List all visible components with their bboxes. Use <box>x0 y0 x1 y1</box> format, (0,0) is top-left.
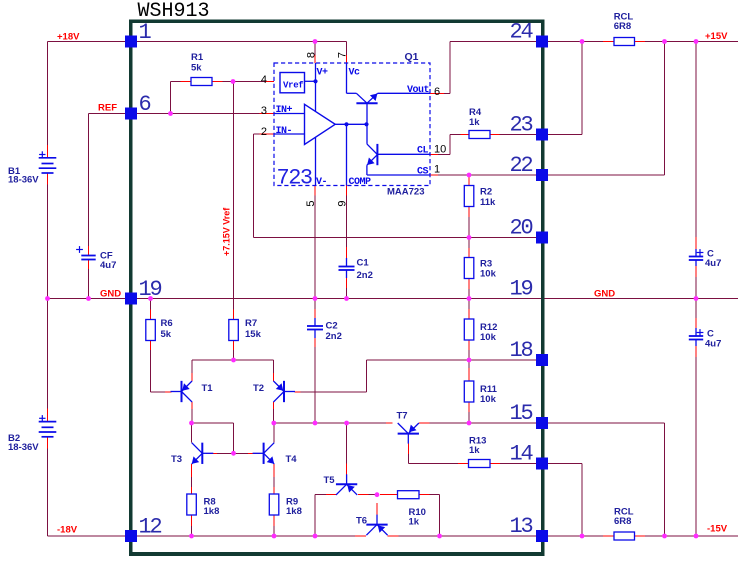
svg-text:22: 22 <box>509 153 532 178</box>
svg-text:Vc: Vc <box>349 68 361 79</box>
svg-text:2: 2 <box>261 126 267 138</box>
svg-text:Q1: Q1 <box>405 51 419 63</box>
svg-text:10k: 10k <box>480 269 497 280</box>
svg-text:4u7: 4u7 <box>705 258 721 269</box>
svg-text:6R8: 6R8 <box>614 516 631 527</box>
svg-text:11k: 11k <box>480 197 496 208</box>
svg-text:V+: V+ <box>317 68 329 79</box>
svg-text:9: 9 <box>336 200 348 206</box>
svg-text:15k: 15k <box>245 329 262 340</box>
svg-text:19: 19 <box>139 277 162 302</box>
svg-text:GND: GND <box>594 289 615 300</box>
svg-text:C2: C2 <box>326 321 338 332</box>
svg-text:5k: 5k <box>161 329 172 340</box>
svg-text:19: 19 <box>509 277 532 302</box>
svg-text:COMP: COMP <box>349 177 372 188</box>
svg-text:6: 6 <box>434 86 440 98</box>
svg-text:20: 20 <box>509 216 532 241</box>
svg-text:MAA723: MAA723 <box>387 187 425 198</box>
svg-text:T6: T6 <box>356 516 367 527</box>
svg-text:4u7: 4u7 <box>100 260 116 271</box>
svg-text:10: 10 <box>434 144 446 156</box>
svg-text:23: 23 <box>509 113 532 138</box>
svg-text:R7: R7 <box>245 318 257 329</box>
svg-text:14: 14 <box>509 442 533 467</box>
svg-text:4: 4 <box>261 74 267 86</box>
svg-text:R1: R1 <box>191 52 204 63</box>
svg-text:18-36V: 18-36V <box>8 175 39 186</box>
svg-text:1k: 1k <box>409 517 420 528</box>
svg-text:13: 13 <box>509 514 532 539</box>
svg-text:18-36V: 18-36V <box>8 442 39 453</box>
svg-text:IN-: IN- <box>276 126 293 137</box>
svg-text:CS: CS <box>417 167 429 178</box>
svg-text:1k: 1k <box>469 445 480 456</box>
svg-text:+15V: +15V <box>705 31 728 42</box>
svg-text:-15V: -15V <box>707 524 728 535</box>
svg-text:Vout: Vout <box>407 85 430 96</box>
svg-text:GND: GND <box>100 289 121 300</box>
svg-text:1k8: 1k8 <box>204 506 220 517</box>
svg-text:5k: 5k <box>191 63 202 74</box>
svg-text:C1: C1 <box>357 258 370 269</box>
svg-text:CL: CL <box>417 146 429 157</box>
svg-text:V-: V- <box>316 177 327 188</box>
svg-text:12: 12 <box>139 515 162 540</box>
svg-text:+18V: +18V <box>57 32 80 43</box>
svg-text:T3: T3 <box>171 454 182 465</box>
svg-text:R6: R6 <box>161 318 173 329</box>
svg-text:723: 723 <box>277 166 312 191</box>
svg-text:10k: 10k <box>480 332 497 343</box>
svg-text:7: 7 <box>336 52 348 58</box>
svg-text:6R8: 6R8 <box>614 21 631 32</box>
svg-text:8: 8 <box>305 52 317 58</box>
svg-text:1k: 1k <box>469 117 480 128</box>
svg-text:6: 6 <box>139 92 151 117</box>
svg-text:T2: T2 <box>253 383 264 394</box>
svg-text:18: 18 <box>509 338 532 363</box>
svg-text:T4: T4 <box>286 454 298 465</box>
svg-text:R2: R2 <box>480 187 492 198</box>
svg-text:T7: T7 <box>397 411 408 422</box>
svg-text:T5: T5 <box>324 475 336 486</box>
svg-text:REF: REF <box>98 103 117 114</box>
svg-text:5: 5 <box>305 200 317 206</box>
svg-text:+7.15V Vref: +7.15V Vref <box>222 207 232 256</box>
svg-text:-18V: -18V <box>57 525 78 536</box>
svg-text:10k: 10k <box>480 394 497 405</box>
svg-text:1: 1 <box>434 164 440 176</box>
svg-text:IN+: IN+ <box>276 105 293 116</box>
svg-text:24: 24 <box>509 20 533 45</box>
svg-text:2n2: 2n2 <box>326 331 342 342</box>
svg-text:3: 3 <box>261 105 267 117</box>
svg-text:15: 15 <box>509 401 532 426</box>
svg-text:Vref: Vref <box>283 81 303 91</box>
svg-text:1k8: 1k8 <box>286 506 302 517</box>
svg-text:2n2: 2n2 <box>357 270 373 281</box>
svg-text:T1: T1 <box>202 383 214 394</box>
svg-text:4u7: 4u7 <box>705 339 721 350</box>
